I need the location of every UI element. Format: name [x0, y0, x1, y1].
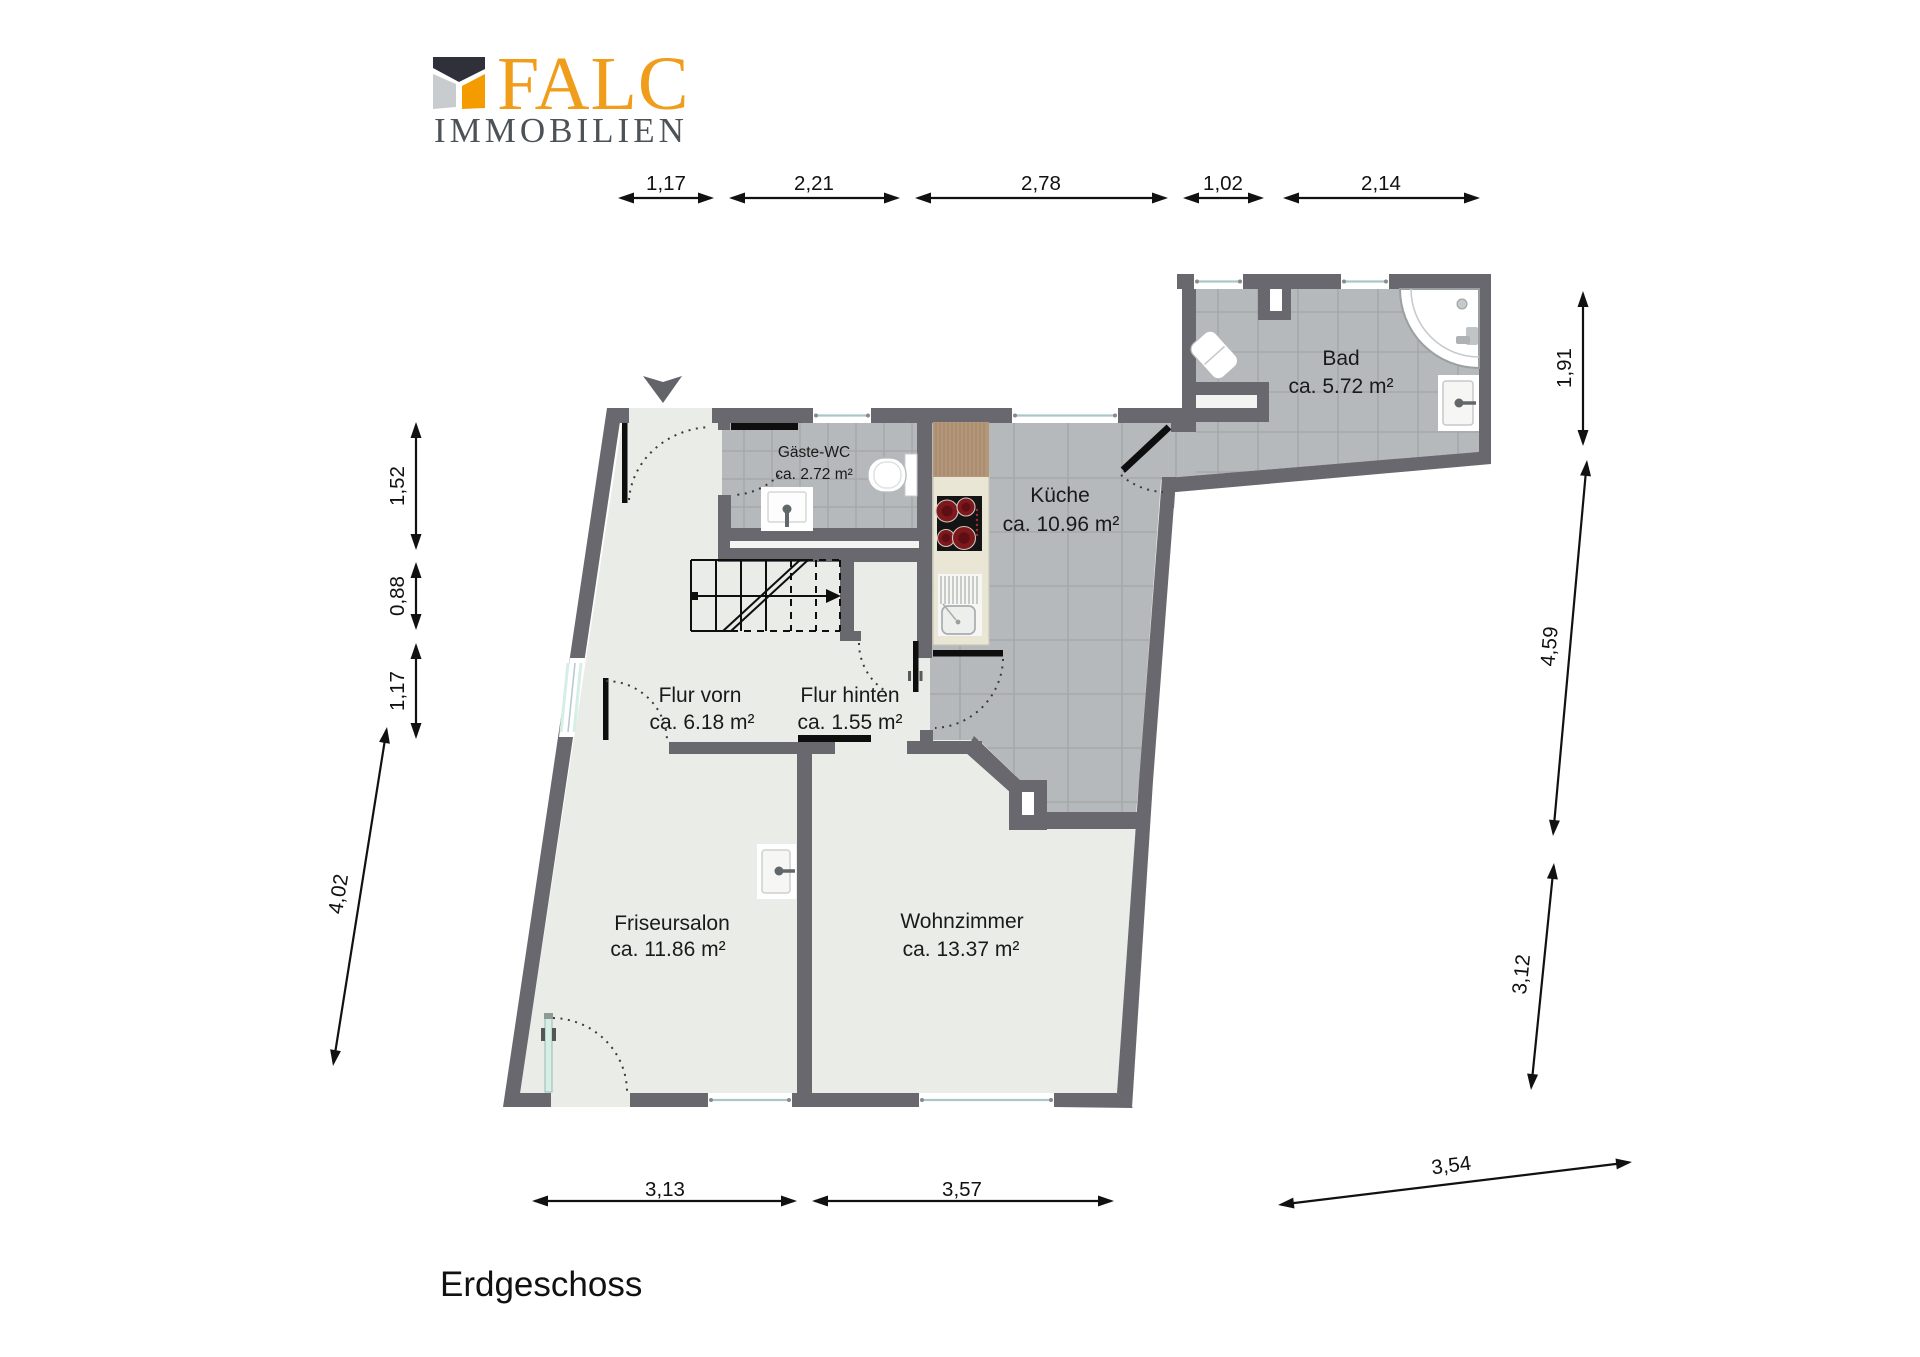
svg-text:1,52: 1,52	[386, 466, 409, 506]
svg-text:ca. 6.18 m²: ca. 6.18 m²	[649, 711, 754, 734]
svg-text:Küche: Küche	[1030, 484, 1090, 507]
svg-text:IMMOBILIEN: IMMOBILIEN	[434, 111, 688, 150]
svg-text:2,14: 2,14	[1361, 172, 1401, 195]
svg-text:4,02: 4,02	[324, 872, 353, 915]
svg-text:1,02: 1,02	[1203, 172, 1243, 195]
svg-text:3,13: 3,13	[645, 1178, 685, 1201]
svg-text:Flur hinten: Flur hinten	[800, 684, 899, 707]
svg-text:2,21: 2,21	[794, 172, 834, 195]
svg-text:3,12: 3,12	[1508, 953, 1535, 995]
svg-text:4,59: 4,59	[1536, 626, 1562, 668]
svg-text:3,57: 3,57	[942, 1178, 982, 1201]
svg-text:Erdgeschoss: Erdgeschoss	[440, 1265, 642, 1304]
svg-text:1,91: 1,91	[1553, 348, 1576, 388]
svg-text:ca. 2.72 m²: ca. 2.72 m²	[775, 466, 853, 483]
svg-text:ca. 10.96 m²: ca. 10.96 m²	[1003, 513, 1120, 536]
svg-text:Friseursalon: Friseursalon	[614, 912, 730, 935]
svg-text:Wohnzimmer: Wohnzimmer	[900, 910, 1023, 933]
svg-text:ca. 11.86 m²: ca. 11.86 m²	[610, 938, 725, 961]
svg-text:1,17: 1,17	[646, 172, 686, 195]
svg-text:ca. 13.37 m²: ca. 13.37 m²	[903, 938, 1020, 961]
svg-text:ca. 1.55 m²: ca. 1.55 m²	[797, 711, 902, 734]
svg-text:0,88: 0,88	[386, 576, 409, 616]
svg-text:ca. 5.72 m²: ca. 5.72 m²	[1288, 375, 1393, 398]
svg-text:2,78: 2,78	[1021, 172, 1061, 195]
svg-text:1,17: 1,17	[386, 671, 409, 711]
svg-text:Bad: Bad	[1322, 347, 1359, 370]
svg-text:Flur vorn: Flur vorn	[659, 684, 742, 707]
svg-text:Gäste-WC: Gäste-WC	[778, 444, 850, 461]
svg-text:3,54: 3,54	[1430, 1152, 1472, 1180]
